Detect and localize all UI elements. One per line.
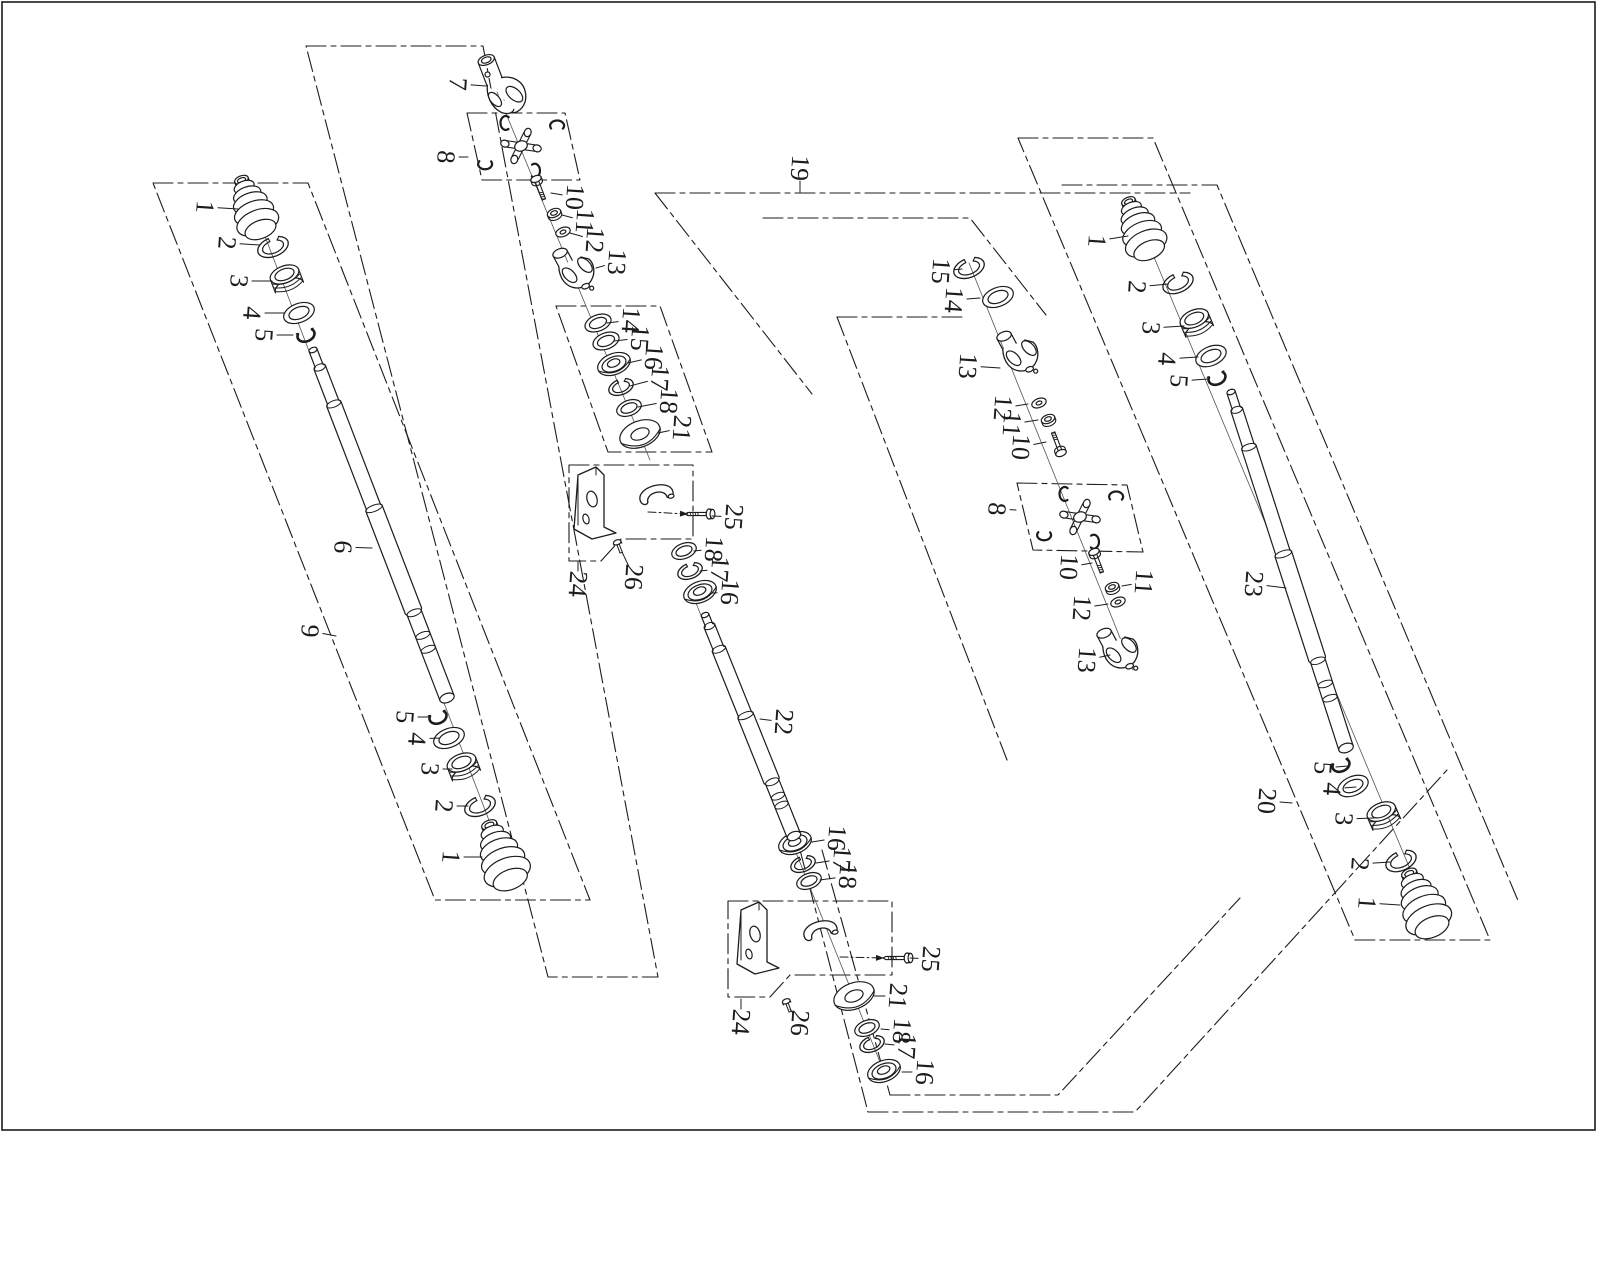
part-number-label: 5	[249, 328, 279, 343]
part-number-label: 7	[443, 77, 473, 92]
part-number-label: 18	[654, 387, 685, 415]
part-number-label: 5	[390, 710, 420, 725]
part-number-label: 2	[212, 236, 242, 251]
parts-diagram-page: 1234569543217810111213141516171821252426…	[0, 0, 1600, 1280]
part-number-label: 9	[295, 624, 325, 639]
part-number-label: 16	[910, 1058, 941, 1086]
part-number-label: 6	[328, 540, 358, 555]
part-number-label: 3	[1329, 812, 1359, 827]
part-number-label: 2	[429, 799, 459, 814]
callout-16: 16	[712, 578, 745, 606]
part-number-label: 19	[785, 154, 816, 182]
part-number-label: 26	[785, 1009, 816, 1037]
part-number-label: 13	[1072, 646, 1103, 674]
part-number-label: 3	[1136, 321, 1166, 336]
part-number-label: 26	[619, 563, 650, 591]
part-number-label: 25	[719, 503, 750, 531]
part-number-label: 12	[1067, 594, 1098, 622]
part-number-label: 24	[726, 1008, 757, 1036]
part-number-label: 2	[1122, 280, 1152, 295]
callout-26: 26	[785, 1009, 816, 1037]
part-number-label: 21	[667, 414, 698, 442]
part-number-label: 1	[1352, 896, 1382, 911]
part-number-label: 4	[1152, 352, 1182, 367]
part-number-label: 20	[1252, 787, 1283, 815]
part-number-label: 17	[892, 1032, 923, 1060]
part-number-label: 10	[1054, 553, 1085, 581]
part-number-label: 23	[1239, 570, 1270, 598]
part-number-label: 3	[224, 274, 254, 289]
part-number-label: 10	[1006, 433, 1037, 461]
part-number-label: 5	[1308, 761, 1338, 776]
part-number-label: 18	[833, 862, 864, 890]
part-number-label: 1	[190, 200, 220, 215]
part-number-label: 21	[883, 982, 914, 1010]
part-number-label: 25	[916, 945, 947, 973]
part-number-label: 4	[1317, 782, 1347, 797]
part-number-label: 1	[1082, 234, 1112, 249]
part-number-label: 13	[602, 248, 633, 276]
part-number-label: 24	[563, 570, 594, 598]
exploded-parts-diagram: 1234569543217810111213141516171821252426…	[0, 0, 1600, 1280]
part-number-label: 4	[402, 732, 432, 747]
part-number-label: 8	[982, 502, 1012, 517]
callout-8: 8	[982, 502, 1016, 517]
part-number-label: 8	[431, 150, 461, 165]
part-number-label: 22	[769, 708, 800, 736]
part-number-label: 13	[953, 352, 984, 380]
part-number-label: 5	[1164, 374, 1194, 389]
part-number-label: 4	[237, 306, 267, 321]
part-number-label: 11	[1129, 568, 1160, 595]
part-number-label: 2	[1345, 857, 1375, 872]
part-number-label: 14	[939, 286, 970, 314]
part-number-label: 15	[926, 257, 957, 285]
part-number-label: 3	[415, 762, 445, 777]
part-number-label: 1	[436, 850, 466, 865]
part-number-label: 16	[715, 578, 746, 606]
